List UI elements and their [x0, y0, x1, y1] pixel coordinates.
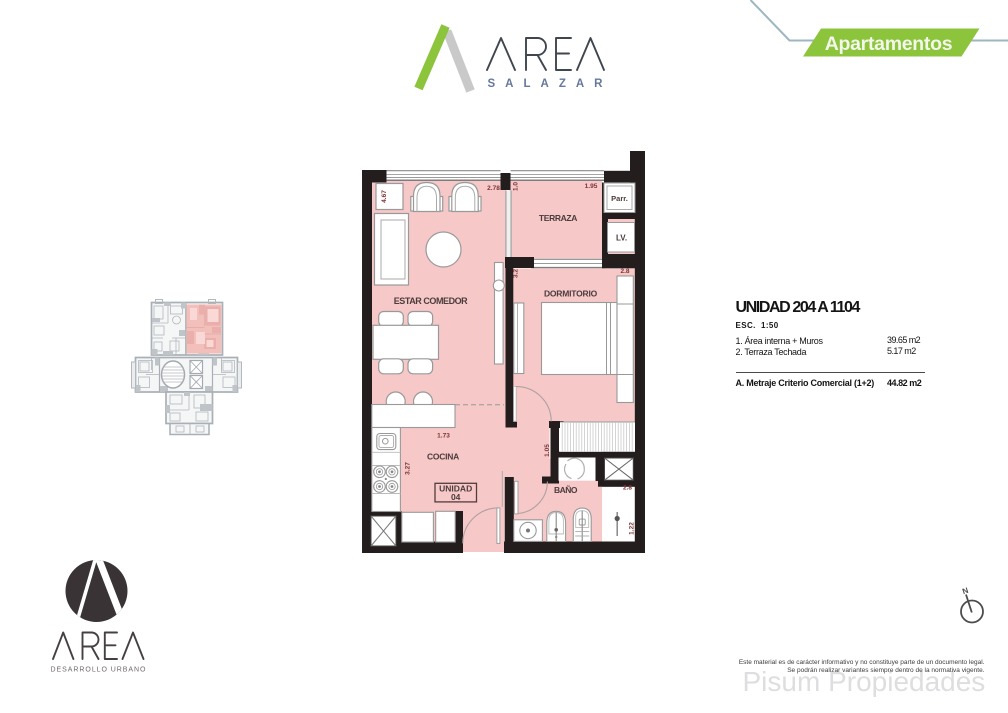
- svg-text:DORMITORIO: DORMITORIO: [544, 289, 598, 299]
- svg-text:ESTAR COMEDOR: ESTAR COMEDOR: [394, 296, 468, 306]
- svg-text:1.05: 1.05: [544, 444, 551, 457]
- svg-text:1.73: 1.73: [437, 433, 450, 440]
- svg-text:LV.: LV.: [616, 234, 627, 243]
- svg-text:BAÑO: BAÑO: [554, 485, 578, 495]
- svg-text:1.95: 1.95: [585, 183, 598, 190]
- svg-text:1.0: 1.0: [512, 182, 519, 191]
- svg-text:4.67: 4.67: [381, 190, 388, 203]
- svg-text:COCINA: COCINA: [427, 452, 459, 462]
- svg-text:3.27: 3.27: [405, 462, 412, 475]
- svg-text:2.78: 2.78: [487, 185, 500, 192]
- svg-text:TERRAZA: TERRAZA: [539, 213, 577, 223]
- svg-text:2.8: 2.8: [623, 485, 632, 492]
- svg-text:2.8: 2.8: [620, 268, 629, 275]
- svg-text:04: 04: [451, 492, 461, 502]
- svg-text:3.2: 3.2: [512, 269, 519, 278]
- svg-text:1.22: 1.22: [629, 522, 636, 535]
- svg-text:Parr.: Parr.: [611, 194, 628, 203]
